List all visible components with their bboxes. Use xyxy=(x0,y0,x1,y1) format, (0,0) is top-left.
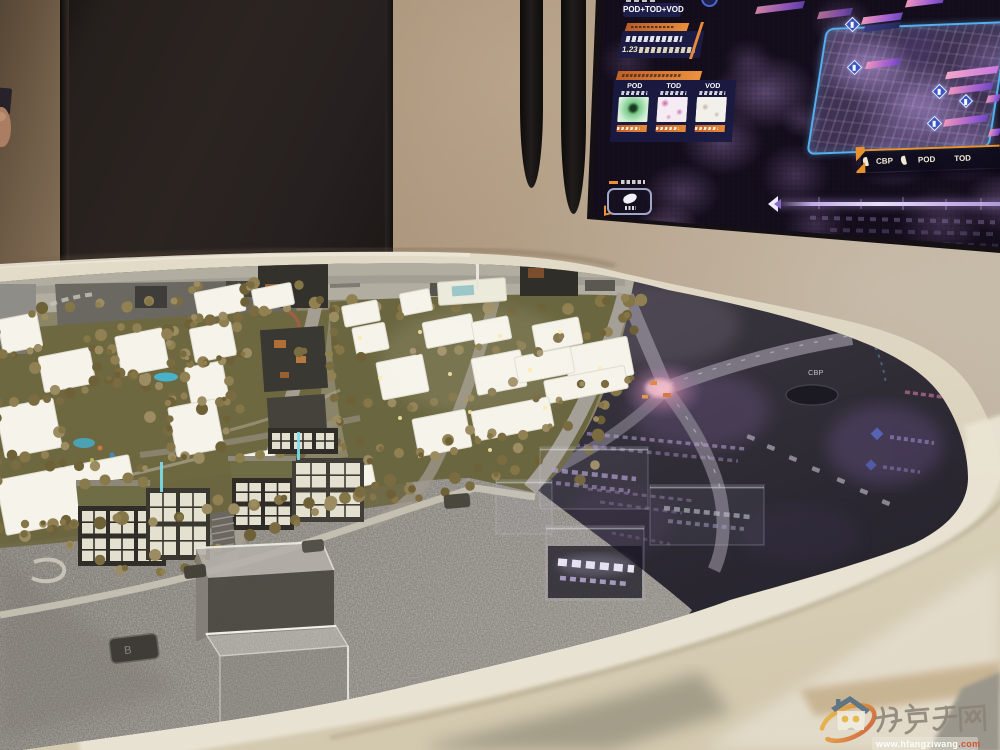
svg-text:B: B xyxy=(124,644,133,657)
svg-text:CBP: CBP xyxy=(808,368,823,377)
svg-text:www.hfangziwang.com: www.hfangziwang.com xyxy=(875,739,980,749)
